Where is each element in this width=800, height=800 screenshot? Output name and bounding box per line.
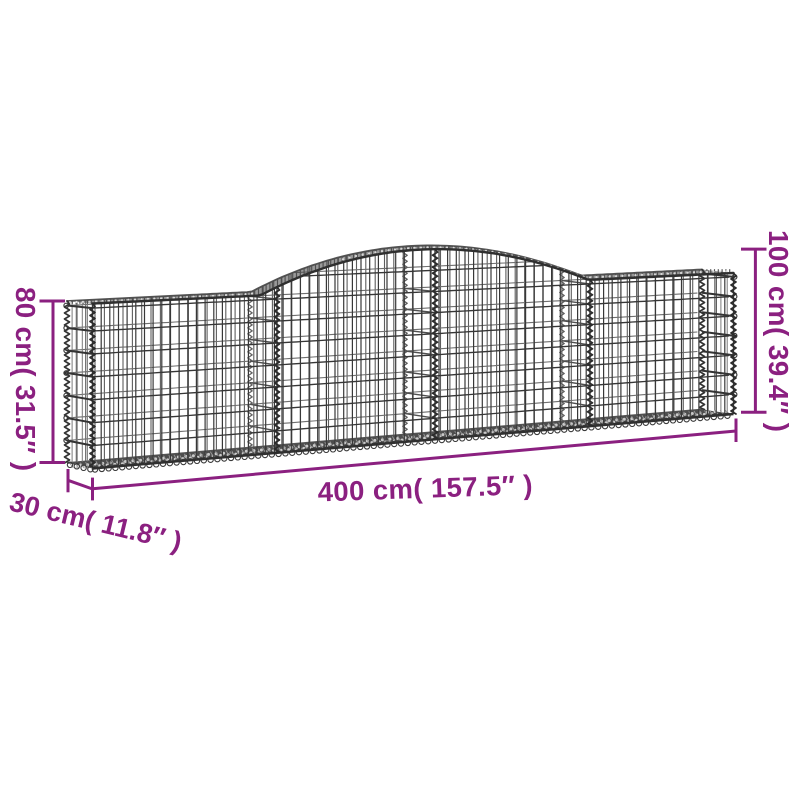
svg-text:100 cm( 39.4″ ): 100 cm( 39.4″ ) — [763, 230, 794, 432]
svg-text:80 cm( 31.5″ ): 80 cm( 31.5″ ) — [10, 287, 41, 471]
